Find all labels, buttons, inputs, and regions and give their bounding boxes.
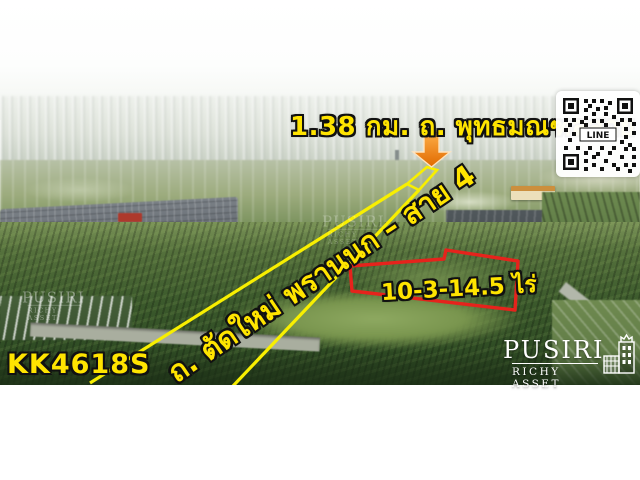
qr-finder-bottom-left [563, 154, 579, 170]
qr-line-label: LINE [587, 131, 610, 141]
watermark-name: PUSIRI [22, 290, 85, 305]
building-crown [621, 335, 632, 342]
qr-pattern-icon: LINE [556, 91, 640, 177]
annotation-overlay [0, 0, 640, 385]
qr-finder-top-right [617, 98, 633, 114]
qr-code: LINE [556, 91, 640, 177]
watermark: PUSIRI RICHY ASSET [22, 290, 85, 322]
brand-tagline: RICHY ASSET [512, 363, 598, 390]
watermark-tagline: RICHY ASSET [28, 305, 81, 322]
brand-logo: PUSIRI RICHY ASSET [503, 338, 637, 382]
listing-code-label: KK4618S [7, 349, 150, 380]
building-icon [601, 332, 637, 378]
qr-finder-top-left [563, 98, 579, 114]
